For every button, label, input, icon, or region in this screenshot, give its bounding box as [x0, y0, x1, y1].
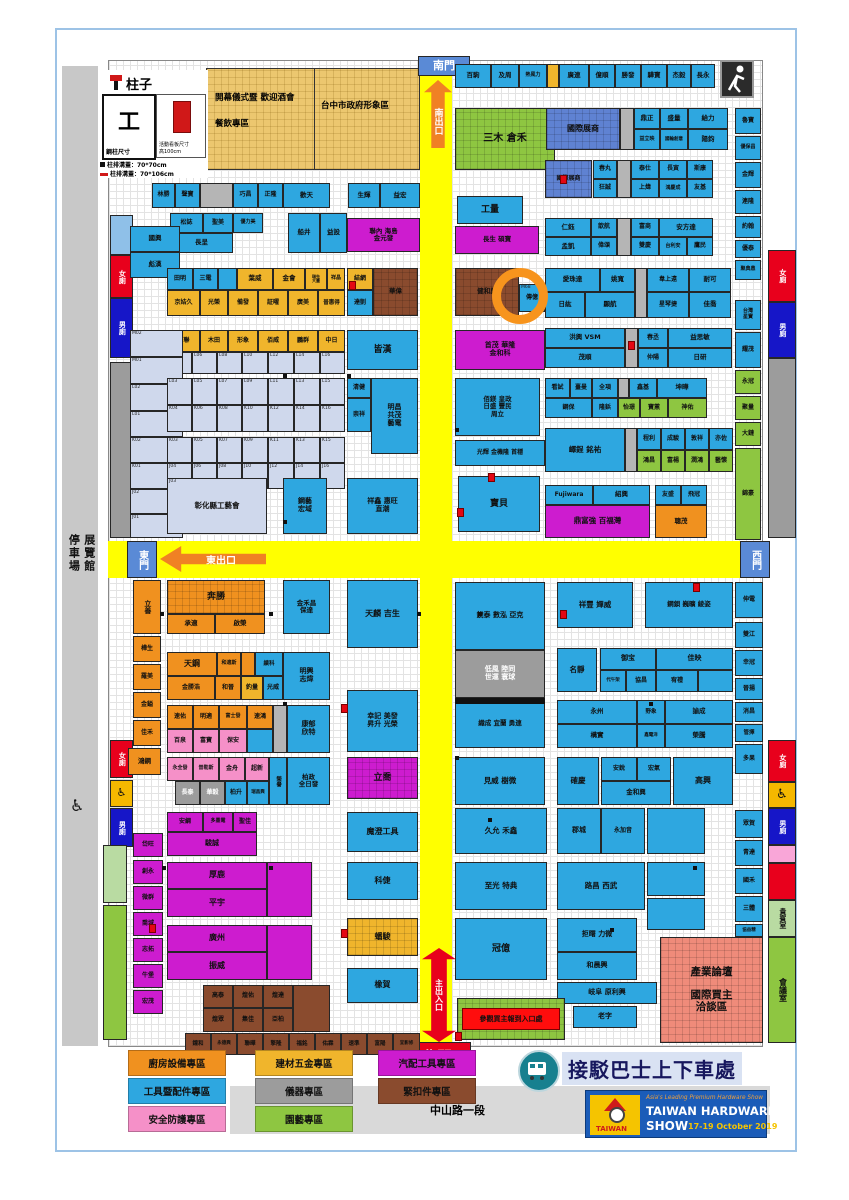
booth: 春丞 — [638, 328, 668, 348]
booth: 清健 — [347, 378, 371, 398]
booth: 名靜 — [557, 648, 597, 692]
fire-extinguisher-marker — [349, 281, 356, 290]
booth: 承適 — [167, 614, 215, 634]
booth: K04 — [167, 405, 192, 432]
booth: 偉頌 — [591, 237, 617, 256]
booth: L14 — [294, 352, 320, 374]
booth: 成駿 — [661, 428, 685, 450]
show-logo: TAIWAN Asia's Leading Premium Hardware S… — [585, 1090, 767, 1138]
booth: 廣美 — [288, 290, 318, 316]
logo-house-icon: TAIWAN — [590, 1095, 640, 1135]
booth: 富寶 — [193, 729, 219, 753]
booth: 志拓 — [133, 938, 163, 962]
booth: 華偉 — [373, 268, 418, 316]
booth: 敦祥 — [685, 428, 709, 450]
legend-item: 緊扣件專區 — [378, 1078, 476, 1104]
booth: 大鏈 — [735, 422, 761, 446]
booth: 確慶 — [557, 757, 599, 805]
booth: 立善 — [133, 580, 161, 634]
logo-date: 17-19 October 2019 — [688, 1122, 777, 1131]
booth: 安綱 — [167, 812, 203, 832]
booth: 立喬 — [347, 757, 418, 799]
booth: 國輪創意 — [660, 129, 688, 150]
booth: 正隆 — [258, 183, 283, 208]
booth: 耀茂 — [735, 332, 761, 368]
booth — [617, 160, 631, 198]
booth: 潤鴻 — [685, 450, 709, 472]
booth: 怡璟 — [618, 398, 640, 418]
booth: 樺生 — [133, 636, 161, 662]
gutter-note-2: 柱排溝蓋：70*106cm — [100, 169, 174, 178]
booth: 柏政 全日發 — [287, 757, 330, 805]
pillar-dot — [649, 702, 653, 706]
booth: 見威 樹微 — [455, 757, 545, 805]
booth: 富楊 — [661, 450, 685, 472]
booth: 天鋼 — [167, 652, 217, 676]
booth: 星琴捷 — [647, 292, 689, 318]
booth: 榮譽 — [269, 757, 287, 805]
ceremony-zone-label: 開幕儀式暨 歡迎酒會 — [215, 91, 311, 103]
booth: 台灣 星寶 — [735, 300, 761, 330]
booth: 聖美 — [203, 213, 233, 233]
booth: 三木 倉禾 — [455, 108, 555, 170]
booth: 銳泰 數泓 亞克 — [455, 582, 545, 650]
booth: ♿ — [110, 780, 133, 807]
booth — [267, 862, 312, 917]
booth: 績科 — [255, 652, 283, 676]
booth: K05 — [192, 437, 217, 463]
booth: 三電 — [193, 268, 218, 290]
booth: 日紘 — [545, 292, 585, 318]
booth: 多果 — [735, 744, 763, 774]
booth: Fujiwara — [545, 485, 593, 505]
booth: L11 — [268, 378, 294, 405]
booth — [103, 905, 127, 1040]
pillar-dot — [455, 756, 459, 760]
ibeam-icon: 工 — [118, 104, 140, 136]
booth: K16 — [320, 405, 345, 432]
booth: K08 — [217, 405, 242, 432]
booth: 仁鈺 — [545, 218, 591, 237]
booth: 聚量 — [735, 396, 761, 420]
fire-extinguisher-marker — [628, 341, 635, 350]
booth: 神佑 — [668, 398, 707, 418]
booth: 金和興 — [601, 781, 671, 805]
fire-extinguisher-marker — [560, 610, 567, 619]
booth: K15 — [320, 437, 345, 463]
pillar-icon-stem — [114, 81, 118, 90]
booth: 普勒斯 — [193, 757, 219, 781]
booth: K09 — [242, 437, 268, 463]
booth — [698, 670, 733, 692]
booth: 生輝 — [348, 183, 380, 208]
booth: 久允 禾鑫 — [455, 808, 547, 854]
floorplan-canvas: 展覽館 停車場 ♿ 開幕儀式暨 歡迎酒會 餐飲專區 台中市政府形象區 柱子 工 … — [0, 0, 849, 1200]
booth — [618, 378, 629, 398]
street-name: 中山路一段 — [430, 1102, 485, 1118]
booth: ♿ — [768, 782, 796, 808]
booth: 佳禾 — [133, 720, 161, 746]
pillar-dot — [610, 928, 614, 932]
booth: 藝懷 — [709, 450, 733, 472]
booth: 金輝 — [735, 162, 761, 188]
booth — [103, 845, 127, 903]
booth: 多墨電 — [203, 812, 233, 832]
booth: 船井 — [288, 213, 320, 253]
steel-column-label: 鋼柱尺寸 — [106, 147, 130, 156]
booth: K13 — [294, 437, 320, 463]
buyer-registration-entrance: 參觀買主報到入口處 — [462, 1008, 560, 1030]
legend-item: 儀器專區 — [255, 1078, 353, 1104]
booth: 友基 — [687, 179, 713, 198]
booth: 狂誠 — [593, 179, 617, 198]
booth: 看試 — [545, 378, 570, 398]
logo-line2: SHOW — [646, 1119, 688, 1133]
booth: 幸冠 — [735, 650, 763, 676]
booth: 微群 — [133, 886, 163, 910]
booth: 科倢 — [347, 862, 418, 900]
booth: K07 — [217, 437, 242, 463]
booth: 魯寶 — [735, 108, 761, 134]
booth: 歡天 — [283, 183, 330, 208]
booth: 幸記 美發 昇升 光榮 — [347, 690, 418, 752]
booth: 和晨興 — [557, 952, 637, 980]
booth: 永加音 — [601, 808, 645, 854]
booth: 愛珠達 — [545, 268, 600, 292]
booth: 孟凱 — [545, 237, 591, 256]
booth: 金勝浩 — [167, 676, 215, 700]
booth: 老字 — [573, 1006, 637, 1028]
booth: 田明 — [167, 268, 193, 290]
shuttle-bus-label: 接駁巴士上下車處 — [562, 1052, 742, 1085]
booth: 泰仕 — [631, 160, 659, 179]
fire-extinguisher-marker — [457, 508, 464, 517]
booth: 億順 — [589, 64, 615, 88]
booth: 驊寶 — [641, 64, 667, 88]
booth — [247, 729, 273, 753]
booth: 百駒 — [455, 64, 491, 88]
booth: K03 — [167, 437, 192, 463]
pillar-dot — [269, 612, 273, 616]
booth: 會議室 — [768, 937, 796, 1043]
booth: 程利 — [637, 428, 661, 450]
booth: 中日 — [318, 330, 345, 352]
booth: 金鎰 — [133, 692, 161, 718]
booth: L10 — [242, 352, 268, 374]
booth — [768, 358, 796, 538]
booth: 男廁 — [768, 808, 796, 845]
booth: 平宇 — [167, 889, 267, 917]
booth: 約翰 — [735, 216, 761, 238]
booth: 首茂 華隆 金和科 — [455, 330, 545, 370]
booth: 富士發 — [219, 705, 247, 729]
signboard-diagram: 活動看板尺寸 高100cm — [156, 94, 206, 158]
booth: 女廁 — [768, 740, 796, 782]
booth: 超新 — [245, 757, 269, 781]
booth: 亦佐 — [709, 428, 733, 450]
taichung-city-zone-label: 台中市政府形象區 — [321, 99, 417, 111]
pillar-dot — [162, 866, 166, 870]
booth: 光輝 金機隆 首穩 — [455, 440, 545, 466]
booth: 至光 特典 — [455, 862, 547, 910]
booth: 速鴻 — [247, 705, 273, 729]
booth: 益思敏 — [668, 328, 732, 348]
booth: 青達 — [735, 840, 763, 866]
booth: 厚鹿 — [167, 862, 267, 889]
booth: 伸電 — [735, 582, 763, 618]
booth: 姚寬 — [600, 268, 635, 292]
booth: 郡城 — [557, 808, 601, 854]
booth: 台利安 — [659, 237, 687, 256]
booth: 優保昌 — [735, 136, 761, 160]
booth: 給力 — [688, 108, 728, 129]
booth: 貴賓室 — [768, 900, 796, 937]
booth: 聖佳 — [233, 812, 257, 832]
booth: 亞柏 — [263, 1008, 293, 1032]
booth: 金舟 — [219, 757, 245, 781]
booth: 瑞昌興 — [247, 781, 269, 805]
booth: 林勝 — [152, 183, 175, 208]
booth: 國際展商 — [546, 108, 620, 150]
pillar-dot — [417, 612, 421, 616]
divider-bar — [455, 698, 545, 704]
legend-item: 廚房設備專區 — [128, 1050, 226, 1076]
booth: 鴻鋼 — [128, 748, 161, 775]
pillar-dot — [283, 702, 287, 706]
booth: 振威 — [167, 952, 267, 980]
booth: 雙慶 — [631, 237, 659, 256]
booth: 耐可 — [689, 268, 731, 292]
logo-tagline: Asia's Leading Premium Hardware Show — [646, 1095, 763, 1101]
booth: 鋼藝 宏域 — [283, 478, 327, 534]
booth: 鋼鋇 巍曠 綾姿 — [645, 582, 733, 628]
booth: 佰鎂 皇政 日盛 豐民 周立 — [455, 378, 540, 436]
booth: 宏茂 — [133, 990, 163, 1014]
booth: 祥晶 — [327, 268, 345, 290]
booth: 歆航 — [591, 218, 617, 237]
booth: 橡賀 — [347, 968, 418, 1003]
booth: 鴻昌 — [637, 450, 661, 472]
booth: L16 — [320, 352, 345, 374]
booth — [241, 652, 255, 676]
booth: 寶貝 — [458, 476, 540, 532]
booth: 牛堡 — [133, 964, 163, 988]
booth: 陽鈞 — [688, 129, 728, 150]
fire-extinguisher-marker — [693, 583, 700, 592]
booth: 魔澄工具 — [347, 812, 418, 852]
booth: 產業論壇 國際買主 洽談區 — [660, 937, 763, 1043]
logo-line1: TAIWAN HARDWARE — [646, 1104, 776, 1118]
pillar-dot — [347, 374, 351, 378]
fire-extinguisher-marker — [455, 1032, 462, 1041]
booth: 代午架 — [600, 670, 626, 692]
booth: K12 — [268, 405, 294, 432]
dining-zone-label: 餐飲專區 — [215, 117, 311, 129]
pillar-dot — [283, 520, 287, 524]
booth: 百泉 — [167, 729, 193, 753]
booth: 勝發 — [615, 64, 641, 88]
booth: 佰威 — [258, 330, 288, 352]
booth: 聚典鼎 — [735, 260, 761, 280]
booth: 三體 — [735, 896, 763, 922]
booth: 羅美 — [133, 664, 161, 690]
booth: L08 — [217, 352, 242, 374]
booth: 華毅 — [200, 781, 225, 805]
parking-label: 展覽館 停車場 — [66, 534, 97, 573]
booth: 消昌 — [735, 702, 763, 722]
booth: 長寅 — [659, 160, 687, 179]
booth: 佳映 — [656, 648, 733, 670]
booth: 啟榮 — [215, 614, 265, 634]
booth: L09 — [242, 378, 268, 405]
booth: 韋上遠 — [647, 268, 689, 292]
booth: 創永 — [133, 860, 163, 884]
booth: 永州 — [557, 700, 637, 724]
booth: 協昌 — [626, 670, 656, 692]
booth: 岐阜 原利興 — [557, 982, 657, 1004]
parking-strip: 展覽館 停車場 ♿ — [62, 66, 98, 1046]
booth: 喬域 — [133, 912, 163, 936]
pillar-dot — [160, 612, 164, 616]
booth — [200, 183, 233, 208]
booth: 低風 陸同 世運 寰球 — [455, 650, 545, 698]
booth: 柏升 — [225, 781, 247, 805]
booth: 紹興 — [593, 485, 650, 505]
booth: L12 — [268, 352, 294, 374]
booth: 高興 — [673, 757, 733, 805]
booth: 顯航 — [585, 292, 635, 318]
booth: 國興 — [130, 226, 180, 252]
booth: 聲寶 — [175, 183, 200, 208]
booth: L15 — [320, 378, 345, 405]
booth: 鼎正 — [634, 108, 660, 129]
booth: 明適 — [193, 705, 219, 729]
booth: 國禾 — [735, 868, 763, 894]
booth: 証曜 — [258, 290, 288, 316]
booth: 永冠 — [735, 370, 761, 394]
booth: 瑞先 大量 — [305, 268, 327, 290]
booth — [768, 863, 796, 900]
booth: 廣州 — [167, 925, 267, 952]
booth: 協益精 — [735, 924, 763, 937]
booth: 巧昌 — [233, 183, 258, 208]
booth: 益立映 — [634, 129, 660, 150]
booth: 宏氣 — [637, 757, 671, 781]
pillar-dot — [269, 866, 273, 870]
shuttle-bus-stop: 接駁巴士上下車處 — [512, 1048, 772, 1090]
booth: 女廁 — [768, 250, 796, 302]
booth: K11 — [268, 437, 294, 463]
booth: 洪興 VSM — [545, 328, 625, 348]
booth — [218, 268, 237, 290]
pillar-dot — [488, 818, 492, 822]
booth: 優泰 — [735, 240, 761, 258]
fire-extinguisher-marker — [488, 473, 495, 482]
booth — [768, 845, 796, 863]
booth: 釣量 — [241, 676, 263, 700]
booth: 御宝 — [600, 648, 656, 670]
legend-item: 園藝專區 — [255, 1106, 353, 1132]
booth: 長永 — [691, 64, 715, 88]
booth: 和晉 — [215, 676, 241, 700]
booth: 佳喬 — [689, 292, 731, 318]
booth: 保安 — [219, 729, 247, 753]
booth: 臺曼 — [570, 378, 592, 398]
booth: 全項 — [592, 378, 618, 398]
booth: 構實 — [557, 724, 637, 748]
booth: 明興 志煒 — [283, 652, 330, 700]
booth: 織成 宜蘭 勇連 — [455, 700, 545, 748]
booth: 鑫電洋 — [637, 724, 665, 748]
booth: 形象 — [228, 330, 258, 352]
booth: 杰毅 — [667, 64, 691, 88]
legend-item: 安全防護專區 — [128, 1106, 226, 1132]
booth: 煌達 — [263, 985, 293, 1008]
booth: L03 — [167, 378, 192, 405]
booth: 鷹民 — [687, 237, 713, 256]
booth: 京姞久 — [167, 290, 200, 316]
booth: 晉揚 — [735, 678, 763, 700]
fire-extinguisher-marker — [149, 924, 156, 933]
ceremony-zone: 開幕儀式暨 歡迎酒會 餐飲專區 台中市政府形象區 — [206, 68, 420, 170]
booth: 鑫基 — [629, 378, 657, 398]
booth: 長泰 — [175, 781, 200, 805]
booth: 金會 — [273, 268, 305, 290]
booth: 康郁 欣特 — [287, 705, 330, 753]
booth: 諭成 — [665, 700, 733, 724]
pillar-dot — [455, 428, 459, 432]
booth: 煌佑 — [233, 985, 263, 1008]
booth — [647, 898, 705, 930]
booth: 榮騰 — [665, 724, 733, 748]
booth: M02 — [130, 330, 183, 357]
booth: 富商 — [631, 218, 659, 237]
booth: 岱旺 — [133, 833, 163, 857]
booth: 上煒 — [631, 179, 659, 198]
booth: 日研 — [668, 348, 732, 368]
booth: 速佑 — [167, 705, 193, 729]
booth: 金禾昌 保達 — [283, 580, 330, 634]
booth: 錦豪 — [735, 448, 761, 540]
booth: 明昌 共茂 藝電 — [371, 378, 418, 454]
booth: 優力美 — [233, 213, 263, 233]
booth: K10 — [242, 405, 268, 432]
booth: 及周 — [491, 64, 519, 88]
booth: 鴻慶成 — [659, 179, 687, 198]
highlight-ring — [492, 268, 548, 324]
booth: 奔勝 — [167, 580, 265, 614]
booth: 茂順 — [545, 348, 625, 368]
legend-item: 工具暨配件專區 — [128, 1078, 226, 1104]
booth: K14 — [294, 405, 320, 432]
booth: 安銳 — [601, 757, 637, 781]
booth: 彰化縣工藝會J03 — [167, 478, 267, 534]
booth — [267, 925, 312, 980]
booth: 路昌 西武 — [557, 862, 645, 910]
booth: 煌眾 — [203, 1008, 233, 1032]
booth — [617, 218, 631, 256]
booth: 寶黨 — [640, 398, 668, 418]
fire-extinguisher-marker — [560, 175, 567, 184]
booth: 駿誠 — [167, 832, 257, 856]
booth: 工量 — [457, 196, 523, 224]
booth: L05 — [192, 378, 217, 405]
escalator-icon — [720, 60, 754, 98]
booth: 斯康 — [687, 160, 713, 179]
booth: 蟠駿 — [347, 918, 418, 956]
signboard-label: 活動看板尺寸 高100cm — [159, 141, 189, 155]
booth: 盛量 — [660, 108, 688, 129]
